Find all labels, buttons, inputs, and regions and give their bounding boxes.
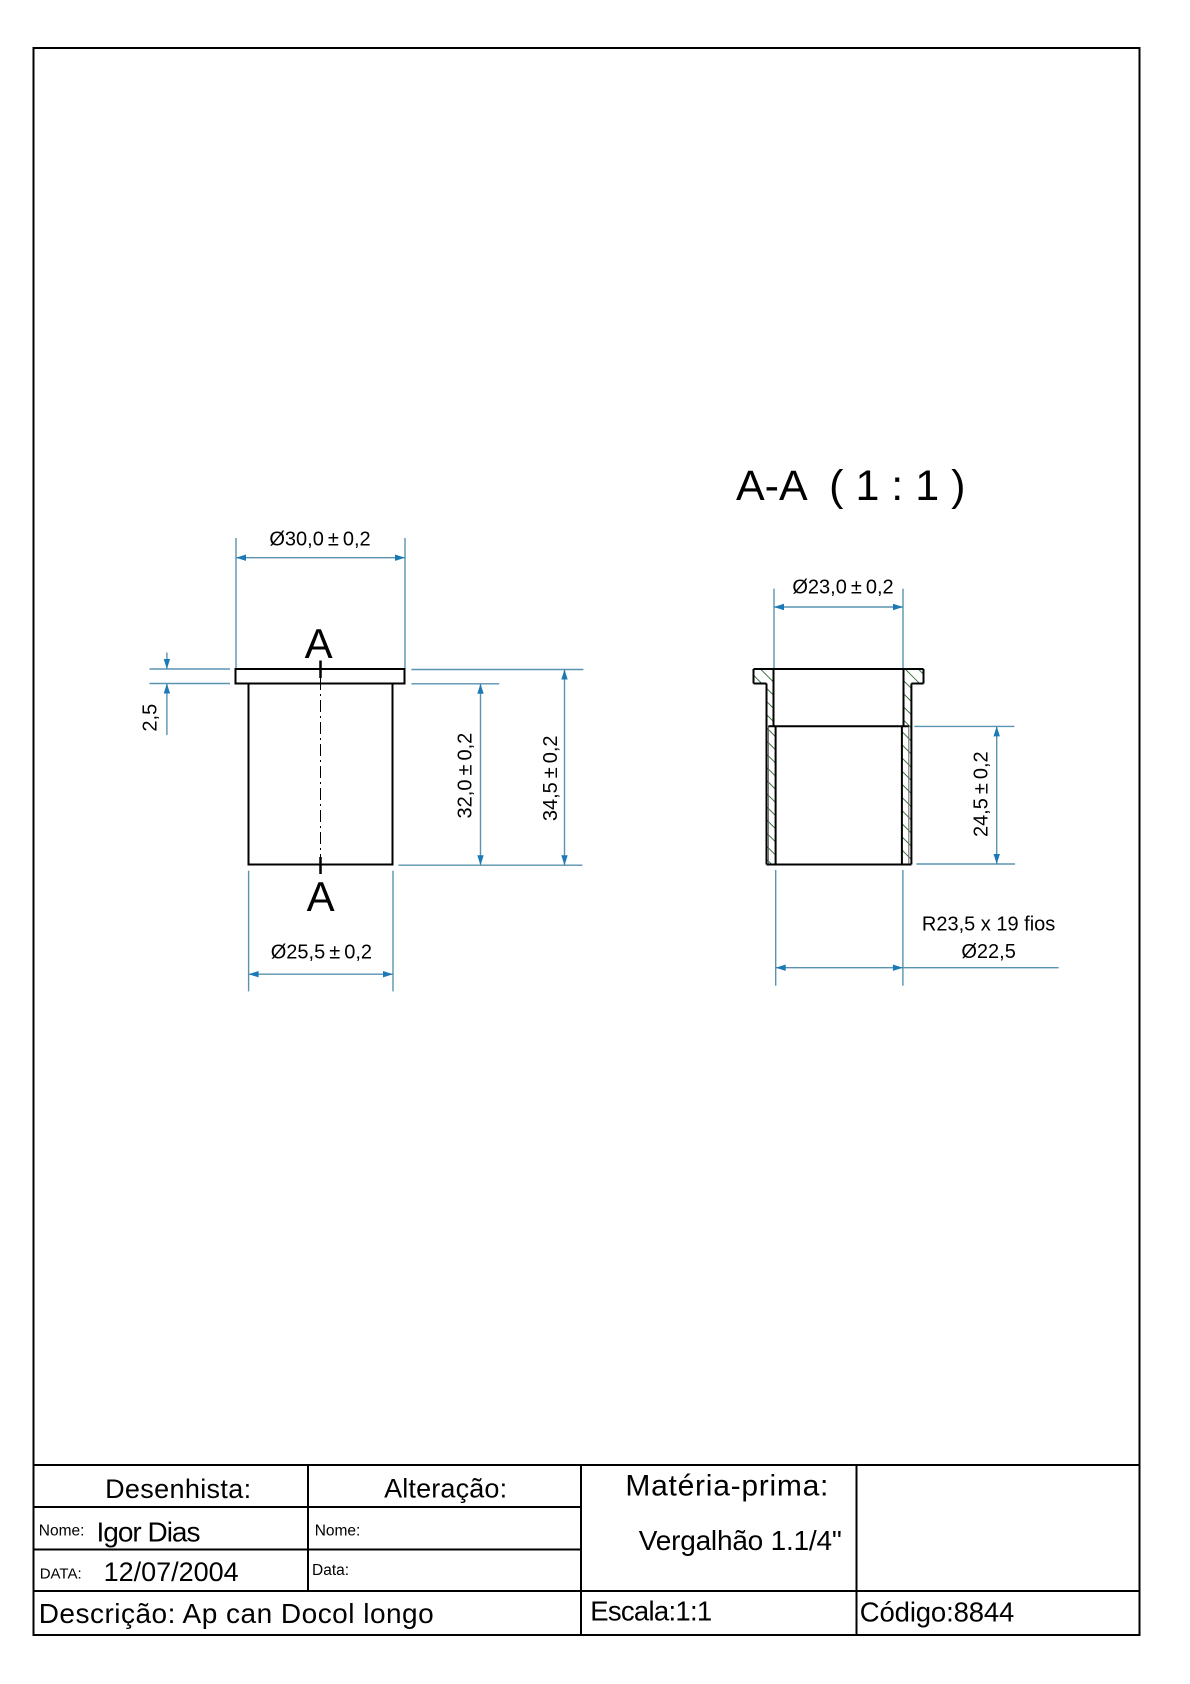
svg-text:Nome:: Nome: <box>39 1523 85 1540</box>
svg-text:Ø25,5 ± 0,2: Ø25,5 ± 0,2 <box>271 942 372 964</box>
svg-text:Ø23,0 ± 0,2: Ø23,0 ± 0,2 <box>792 577 893 599</box>
svg-text:Desenhista:: Desenhista: <box>105 1474 251 1504</box>
svg-text:32,0 ± 0,2: 32,0 ± 0,2 <box>455 733 477 819</box>
svg-text:A-A ( 1 : 1 ): A-A ( 1 : 1 ) <box>736 462 965 510</box>
svg-text:Alteração:: Alteração: <box>384 1474 507 1504</box>
svg-text:Data:: Data: <box>312 1562 349 1579</box>
svg-text:DATA:: DATA: <box>40 1566 82 1583</box>
svg-text:Ø30,0 ± 0,2: Ø30,0 ± 0,2 <box>269 529 370 551</box>
svg-text:Código:8844: Código:8844 <box>860 1597 1015 1628</box>
svg-text:Ø22,5: Ø22,5 <box>961 941 1015 963</box>
svg-text:Descrição: Ap can Docol longo: Descrição: Ap can Docol longo <box>39 1598 434 1629</box>
svg-text:2,5: 2,5 <box>140 704 162 732</box>
svg-text:12/07/2004: 12/07/2004 <box>104 1557 239 1587</box>
svg-text:Matéria-prima:: Matéria-prima: <box>625 1470 828 1503</box>
svg-text:Vergalhão 1.1/4": Vergalhão 1.1/4" <box>639 1525 842 1556</box>
svg-text:24,5 ± 0,2: 24,5 ± 0,2 <box>971 751 993 837</box>
svg-text:Nome:: Nome: <box>315 1523 361 1540</box>
svg-text:R23,5 x 19 fios: R23,5 x 19 fios <box>922 913 1055 935</box>
svg-text:A: A <box>307 873 335 920</box>
svg-text:Escala:1:1: Escala:1:1 <box>590 1596 712 1627</box>
svg-text:34,5 ± 0,2: 34,5 ± 0,2 <box>540 735 562 821</box>
svg-text:A: A <box>305 620 333 667</box>
svg-text:Igor Dias: Igor Dias <box>97 1517 201 1548</box>
